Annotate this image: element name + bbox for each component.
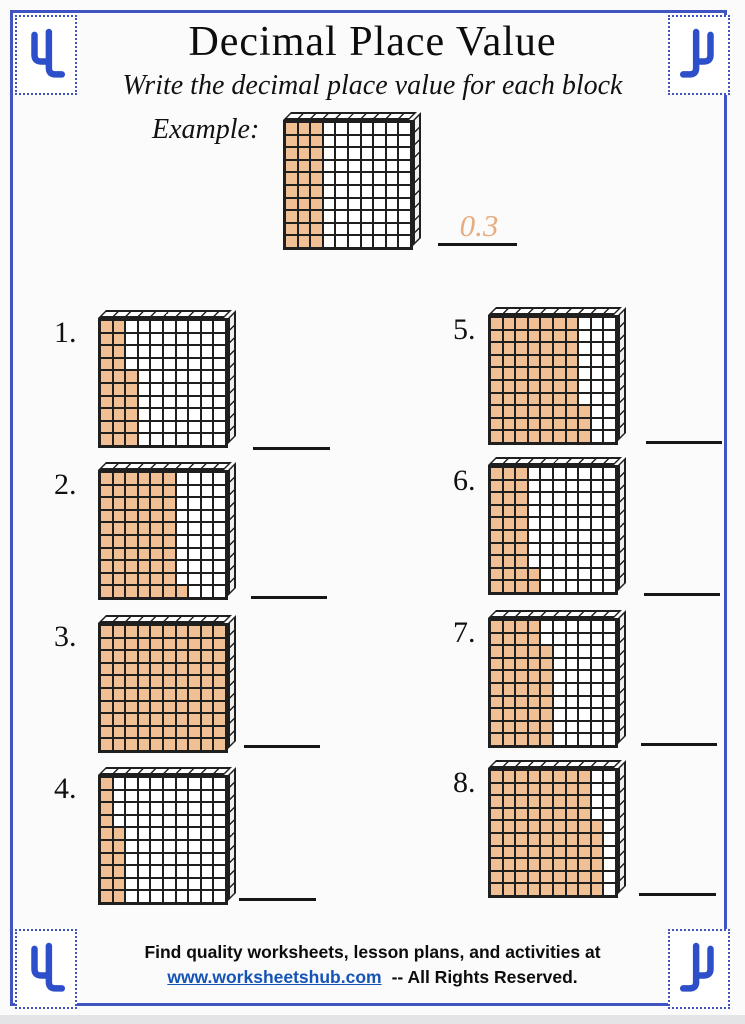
worksheetshub-link[interactable]: www.worksheetshub.com <box>167 967 381 987</box>
grid-cell <box>503 733 516 746</box>
grid-cell <box>188 370 201 383</box>
grid-cell <box>201 878 214 891</box>
grid-cell <box>591 670 604 683</box>
grid-cell <box>591 380 604 393</box>
grid-cell <box>503 555 516 568</box>
grid-cell <box>553 430 566 443</box>
grid-cell <box>125 638 138 651</box>
grid-cell <box>176 472 189 485</box>
grid-cell <box>176 650 189 663</box>
grid-cell <box>540 330 553 343</box>
grid-cell <box>490 858 503 871</box>
grid-cell <box>528 708 541 721</box>
grid-cell <box>348 235 361 248</box>
grid-cell <box>503 783 516 796</box>
grid-cell <box>540 517 553 530</box>
grid-cell <box>566 795 579 808</box>
grid-cell <box>503 846 516 859</box>
grid-cell <box>213 560 226 573</box>
grid-cell <box>310 147 323 160</box>
grid-cell <box>125 585 138 598</box>
grid-cell <box>176 497 189 510</box>
grid-cell <box>100 878 113 891</box>
grid-cell <box>138 396 151 409</box>
grid-cell <box>540 883 553 896</box>
grid-cell <box>386 198 399 211</box>
grid-cell <box>540 505 553 518</box>
grid-cell <box>125 573 138 586</box>
grid-cell <box>201 345 214 358</box>
grid-cell <box>188 320 201 333</box>
grid-cell <box>176 548 189 561</box>
grid-cell <box>603 580 616 593</box>
grid-cell <box>503 430 516 443</box>
grid-cell <box>603 820 616 833</box>
block-right-edge <box>228 462 236 596</box>
grid-cell <box>188 815 201 828</box>
block-right-edge <box>228 615 236 749</box>
grid-cell <box>540 658 553 671</box>
grid-cell <box>201 522 214 535</box>
grid-cell <box>603 683 616 696</box>
grid-cell <box>125 738 138 751</box>
grid-cell <box>163 802 176 815</box>
grid-cell <box>503 795 516 808</box>
grid-cell <box>373 135 386 148</box>
grid-cell <box>188 865 201 878</box>
grid-cell <box>125 790 138 803</box>
grid-cell <box>503 645 516 658</box>
grid-cell <box>591 846 604 859</box>
grid-cell <box>515 721 528 734</box>
grid-cell <box>213 890 226 903</box>
grid-cell <box>515 330 528 343</box>
grid-cell <box>553 721 566 734</box>
grid-cell <box>503 633 516 646</box>
grid-cell <box>528 467 541 480</box>
grid-cell <box>150 320 163 333</box>
grid-cell <box>373 172 386 185</box>
grid-cell <box>213 688 226 701</box>
grid-cell <box>515 380 528 393</box>
grid-cell <box>138 790 151 803</box>
grid-cell <box>578 517 591 530</box>
grid-cell <box>310 198 323 211</box>
grid-cell <box>566 858 579 871</box>
grid-cell <box>566 683 579 696</box>
grid-cell <box>591 580 604 593</box>
grid-cell <box>323 210 336 223</box>
grid-cell <box>528 633 541 646</box>
grid-cell <box>503 330 516 343</box>
grid-cell <box>348 122 361 135</box>
grid-cell <box>176 890 189 903</box>
grid-cell <box>361 135 374 148</box>
grid-cell <box>490 405 503 418</box>
grid-cell <box>591 833 604 846</box>
grid-cell <box>553 418 566 431</box>
grid-cell <box>591 658 604 671</box>
grid-cell <box>113 827 126 840</box>
grid-cell <box>201 560 214 573</box>
block-grid <box>488 315 618 445</box>
grid-cell <box>540 633 553 646</box>
grid-cell <box>386 210 399 223</box>
grid-cell <box>163 713 176 726</box>
grid-cell <box>213 701 226 714</box>
grid-cell <box>188 358 201 371</box>
grid-cell <box>125 625 138 638</box>
grid-cell <box>176 320 189 333</box>
grid-cell <box>553 580 566 593</box>
grid-cell <box>335 185 348 198</box>
grid-cell <box>323 122 336 135</box>
grid-cell <box>285 198 298 211</box>
grid-cell <box>603 858 616 871</box>
grid-cell <box>176 738 189 751</box>
grid-cell <box>150 663 163 676</box>
grid-cell <box>213 510 226 523</box>
grid-cell <box>503 708 516 721</box>
grid-cell <box>540 367 553 380</box>
grid-cell <box>578 530 591 543</box>
grid-cell <box>515 555 528 568</box>
grid-cell <box>113 408 126 421</box>
grid-cell <box>591 355 604 368</box>
grid-cell <box>603 871 616 884</box>
answer-blank <box>646 441 722 444</box>
grid-cell <box>201 421 214 434</box>
grid-cell <box>591 645 604 658</box>
grid-cell <box>298 235 311 248</box>
grid-cell <box>100 573 113 586</box>
grid-cell <box>603 543 616 556</box>
grid-cell <box>113 472 126 485</box>
grid-cell <box>100 890 113 903</box>
grid-cell <box>503 380 516 393</box>
grid-cell <box>188 840 201 853</box>
grid-cell <box>138 675 151 688</box>
grid-cell <box>138 408 151 421</box>
grid-cell <box>503 770 516 783</box>
grid-cell <box>591 858 604 871</box>
grid-cell <box>373 235 386 248</box>
grid-cell <box>528 645 541 658</box>
grid-cell <box>578 620 591 633</box>
grid-cell <box>163 472 176 485</box>
grid-cell <box>566 696 579 709</box>
grid-cell <box>113 815 126 828</box>
grid-cell <box>515 770 528 783</box>
grid-cell <box>490 871 503 884</box>
grid-cell <box>398 235 411 248</box>
grid-cell <box>553 342 566 355</box>
grid-cell <box>398 223 411 236</box>
grid-cell <box>113 675 126 688</box>
grid-cell <box>201 726 214 739</box>
grid-cell <box>540 833 553 846</box>
grid-cell <box>113 383 126 396</box>
grid-cell <box>125 472 138 485</box>
grid-cell <box>125 320 138 333</box>
grid-cell <box>298 160 311 173</box>
grid-cell <box>386 172 399 185</box>
grid-cell <box>113 320 126 333</box>
grid-cell <box>163 370 176 383</box>
grid-cell <box>540 568 553 581</box>
grid-cell <box>113 625 126 638</box>
answer-blank <box>639 893 716 896</box>
grid-cell <box>515 317 528 330</box>
grid-cell <box>298 223 311 236</box>
grid-cell <box>323 160 336 173</box>
grid-cell <box>603 530 616 543</box>
grid-cell <box>150 713 163 726</box>
grid-cell <box>566 517 579 530</box>
grid-cell <box>113 585 126 598</box>
grid-cell <box>503 367 516 380</box>
grid-cell <box>591 342 604 355</box>
grid-cell <box>163 560 176 573</box>
grid-cell <box>553 620 566 633</box>
grid-cell <box>398 122 411 135</box>
grid-cell <box>566 833 579 846</box>
grid-cell <box>125 535 138 548</box>
grid-cell <box>201 777 214 790</box>
grid-cell <box>566 467 579 480</box>
grid-cell <box>490 645 503 658</box>
grid-cell <box>578 405 591 418</box>
grid-cell <box>553 783 566 796</box>
grid-cell <box>540 733 553 746</box>
grid-cell <box>113 497 126 510</box>
grid-cell <box>188 726 201 739</box>
grid-cell <box>163 890 176 903</box>
grid-cell <box>150 802 163 815</box>
grid-cell <box>578 808 591 821</box>
grid-cell <box>176 433 189 446</box>
grid-cell <box>213 535 226 548</box>
grid-cell <box>163 396 176 409</box>
grid-cell <box>503 405 516 418</box>
grid-cell <box>540 430 553 443</box>
grid-cell <box>100 650 113 663</box>
grid-cell <box>188 485 201 498</box>
hundred-block <box>488 760 628 900</box>
grid-cell <box>150 638 163 651</box>
page-scan-edge <box>0 1015 745 1024</box>
grid-cell <box>553 480 566 493</box>
grid-cell <box>540 795 553 808</box>
grid-cell <box>566 480 579 493</box>
grid-cell <box>310 172 323 185</box>
grid-cell <box>188 701 201 714</box>
grid-cell <box>150 777 163 790</box>
grid-cell <box>603 418 616 431</box>
grid-cell <box>163 675 176 688</box>
grid-cell <box>566 733 579 746</box>
grid-cell <box>113 638 126 651</box>
answer-blank <box>244 745 320 748</box>
grid-cell <box>515 530 528 543</box>
grid-cell <box>176 408 189 421</box>
grid-cell <box>310 160 323 173</box>
block-grid <box>488 768 618 898</box>
grid-cell <box>503 670 516 683</box>
grid-cell <box>578 367 591 380</box>
grid-cell <box>503 568 516 581</box>
grid-cell <box>540 770 553 783</box>
grid-cell <box>603 480 616 493</box>
grid-cell <box>490 833 503 846</box>
grid-cell <box>150 585 163 598</box>
grid-cell <box>150 548 163 561</box>
grid-cell <box>138 320 151 333</box>
grid-cell <box>503 393 516 406</box>
grid-cell <box>578 430 591 443</box>
grid-cell <box>298 185 311 198</box>
grid-cell <box>566 883 579 896</box>
grid-cell <box>503 418 516 431</box>
grid-cell <box>490 380 503 393</box>
grid-cell <box>566 645 579 658</box>
grid-cell <box>163 358 176 371</box>
grid-cell <box>591 517 604 530</box>
grid-cell <box>503 820 516 833</box>
grid-cell <box>100 510 113 523</box>
grid-cell <box>566 543 579 556</box>
grid-cell <box>553 393 566 406</box>
grid-cell <box>591 820 604 833</box>
grid-cell <box>125 865 138 878</box>
footer-text-line2: www.worksheetshub.com-- All Rights Reser… <box>13 965 732 990</box>
grid-cell <box>503 833 516 846</box>
grid-cell <box>528 721 541 734</box>
grid-cell <box>553 658 566 671</box>
grid-cell <box>150 573 163 586</box>
grid-cell <box>176 865 189 878</box>
grid-cell <box>201 625 214 638</box>
grid-cell <box>566 405 579 418</box>
grid-cell <box>398 135 411 148</box>
grid-cell <box>335 147 348 160</box>
grid-cell <box>213 675 226 688</box>
grid-cell <box>603 317 616 330</box>
worksheet-page: { "header": { "title": "Decimal Place Va… <box>0 0 745 1024</box>
grid-cell <box>150 688 163 701</box>
grid-cell <box>578 467 591 480</box>
grid-cell <box>176 522 189 535</box>
grid-cell <box>150 701 163 714</box>
grid-cell <box>361 210 374 223</box>
hundred-block <box>98 615 238 755</box>
grid-cell <box>335 223 348 236</box>
grid-cell <box>138 713 151 726</box>
grid-cell <box>515 467 528 480</box>
grid-cell <box>566 721 579 734</box>
grid-cell <box>188 560 201 573</box>
grid-cell <box>100 433 113 446</box>
grid-cell <box>100 383 113 396</box>
grid-cell <box>591 543 604 556</box>
grid-cell <box>201 408 214 421</box>
grid-cell <box>150 650 163 663</box>
grid-cell <box>163 510 176 523</box>
grid-cell <box>113 358 126 371</box>
grid-cell <box>113 535 126 548</box>
grid-cell <box>335 135 348 148</box>
grid-cell <box>100 522 113 535</box>
grid-cell <box>323 185 336 198</box>
grid-cell <box>100 421 113 434</box>
block-top-edge <box>488 760 622 768</box>
grid-cell <box>540 380 553 393</box>
grid-cell <box>150 840 163 853</box>
grid-cell <box>176 421 189 434</box>
grid-cell <box>566 783 579 796</box>
grid-cell <box>188 510 201 523</box>
grid-cell <box>490 330 503 343</box>
grid-cell <box>603 430 616 443</box>
grid-cell <box>138 878 151 891</box>
grid-cell <box>213 802 226 815</box>
grid-cell <box>515 858 528 871</box>
grid-cell <box>540 846 553 859</box>
grid-cell <box>603 367 616 380</box>
grid-cell <box>591 633 604 646</box>
grid-cell <box>138 548 151 561</box>
footer-text-line1: Find quality worksheets, lesson plans, a… <box>13 940 732 965</box>
grid-cell <box>566 568 579 581</box>
grid-cell <box>490 430 503 443</box>
grid-cell <box>578 883 591 896</box>
grid-cell <box>515 808 528 821</box>
grid-cell <box>553 530 566 543</box>
grid-cell <box>490 808 503 821</box>
block-right-edge <box>618 307 626 441</box>
grid-cell <box>188 890 201 903</box>
grid-cell <box>188 333 201 346</box>
grid-cell <box>490 783 503 796</box>
grid-cell <box>201 396 214 409</box>
grid-cell <box>138 840 151 853</box>
grid-cell <box>188 548 201 561</box>
grid-cell <box>138 497 151 510</box>
grid-cell <box>113 650 126 663</box>
grid-cell <box>566 355 579 368</box>
grid-cell <box>553 355 566 368</box>
answer-blank <box>641 743 717 746</box>
grid-cell <box>603 568 616 581</box>
grid-cell <box>361 147 374 160</box>
grid-cell <box>578 721 591 734</box>
grid-cell <box>163 585 176 598</box>
grid-cell <box>503 721 516 734</box>
grid-cell <box>361 235 374 248</box>
grid-cell <box>138 777 151 790</box>
block-right-edge <box>618 760 626 894</box>
grid-cell <box>163 535 176 548</box>
grid-cell <box>528 670 541 683</box>
grid-cell <box>361 223 374 236</box>
grid-cell <box>163 688 176 701</box>
grid-cell <box>100 815 113 828</box>
grid-cell <box>113 738 126 751</box>
grid-cell <box>201 865 214 878</box>
grid-cell <box>176 688 189 701</box>
grid-cell <box>566 846 579 859</box>
grid-cell <box>125 890 138 903</box>
